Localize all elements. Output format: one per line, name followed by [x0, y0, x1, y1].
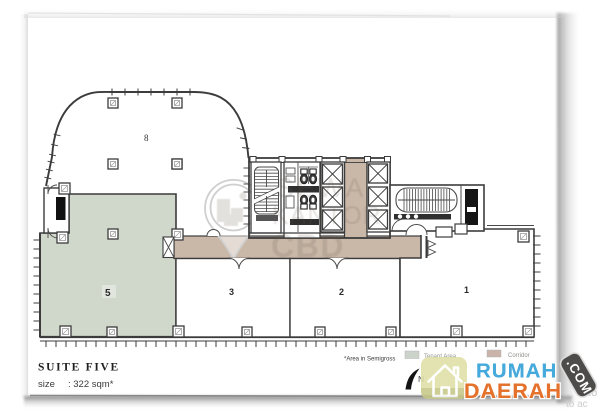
svg-text:SEWA: SEWA — [276, 173, 367, 203]
svg-text:3: 3 — [229, 287, 234, 297]
svg-text:DAERAH: DAERAH — [464, 379, 562, 403]
svg-text:*Area in Semigross: *Area in Semigross — [344, 357, 395, 363]
svg-text:: 322 sqm*: : 322 sqm* — [68, 379, 114, 390]
svg-text:KANTOR: KANTOR — [272, 202, 382, 230]
svg-text:1: 1 — [464, 285, 469, 295]
svg-text:5: 5 — [105, 288, 111, 299]
svg-text:to ac: to ac — [566, 399, 588, 410]
svg-text:Corridor: Corridor — [508, 353, 530, 359]
svg-text:8: 8 — [144, 133, 149, 143]
svg-text:SUITE FIVE: SUITE FIVE — [38, 362, 120, 374]
svg-text:size: size — [38, 379, 55, 390]
svg-text:2: 2 — [339, 287, 344, 297]
svg-text:CBD: CBD — [271, 228, 345, 264]
